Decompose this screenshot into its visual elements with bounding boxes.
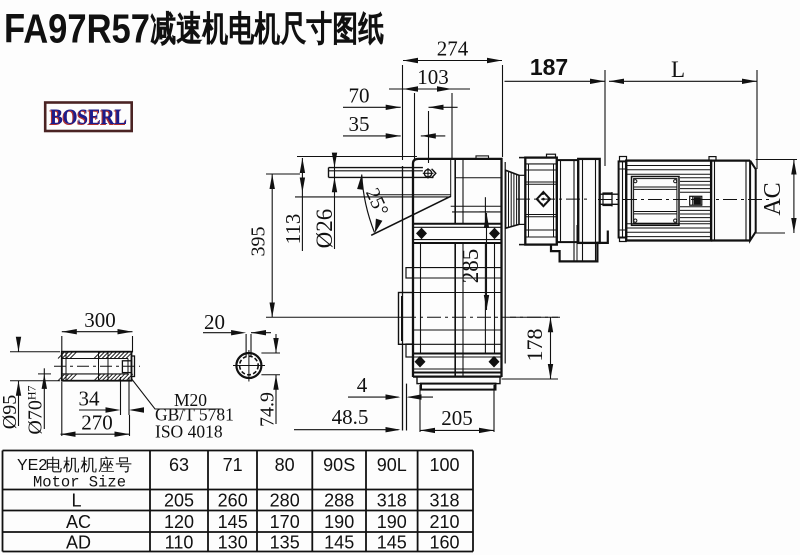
svg-text:120: 120	[164, 512, 194, 532]
svg-text:Ø95: Ø95	[0, 395, 21, 429]
svg-text:90L: 90L	[377, 455, 407, 475]
svg-text:63: 63	[169, 455, 189, 475]
svg-text:285: 285	[458, 249, 483, 284]
svg-text:288: 288	[324, 491, 354, 511]
svg-text:318: 318	[377, 491, 407, 511]
svg-text:L: L	[671, 57, 685, 82]
svg-text:130: 130	[218, 533, 248, 553]
svg-text:71: 71	[223, 455, 243, 475]
svg-text:ISO 4018: ISO 4018	[155, 422, 223, 442]
svg-text:160: 160	[429, 533, 459, 553]
svg-text:70: 70	[349, 84, 370, 108]
svg-text:110: 110	[165, 533, 194, 553]
svg-text:205: 205	[441, 406, 473, 430]
svg-text:178: 178	[522, 329, 547, 362]
svg-text:20: 20	[204, 310, 225, 334]
svg-text:AC: AC	[66, 512, 91, 532]
svg-text:BOSERL: BOSERL	[50, 104, 127, 129]
svg-text:170: 170	[270, 512, 300, 532]
svg-text:FA97R57: FA97R57	[4, 6, 150, 52]
svg-text:274: 274	[437, 37, 469, 61]
svg-text:145: 145	[377, 533, 407, 553]
svg-text:48.5: 48.5	[332, 405, 369, 429]
svg-text:260: 260	[218, 491, 248, 511]
svg-text:90S: 90S	[323, 455, 355, 475]
svg-text:395: 395	[248, 227, 270, 257]
svg-text:190: 190	[324, 512, 354, 532]
svg-text:190: 190	[377, 512, 407, 532]
svg-text:AD: AD	[66, 533, 91, 553]
svg-text:Motor Size: Motor Size	[33, 474, 126, 492]
svg-text:210: 210	[429, 512, 459, 532]
svg-text:300: 300	[84, 308, 116, 332]
svg-text:280: 280	[270, 491, 300, 511]
svg-text:L: L	[71, 491, 81, 511]
svg-text:113: 113	[281, 214, 305, 245]
svg-text:80: 80	[275, 455, 295, 475]
svg-text:100: 100	[429, 455, 459, 475]
svg-text:145: 145	[218, 512, 248, 532]
svg-text:187: 187	[530, 54, 568, 80]
svg-text:270: 270	[81, 411, 113, 435]
svg-text:YE2: YE2	[17, 457, 47, 474]
svg-text:74.9: 74.9	[257, 392, 279, 427]
svg-text:318: 318	[429, 491, 459, 511]
svg-text:205: 205	[164, 491, 194, 511]
svg-text:4: 4	[357, 373, 368, 397]
svg-text:AC: AC	[760, 182, 786, 215]
svg-text:135: 135	[270, 533, 300, 553]
svg-text:Ø26: Ø26	[312, 209, 337, 249]
svg-text:35: 35	[349, 112, 370, 136]
svg-text:34: 34	[79, 387, 101, 411]
svg-text:145: 145	[324, 533, 354, 553]
svg-text:103: 103	[417, 65, 449, 89]
